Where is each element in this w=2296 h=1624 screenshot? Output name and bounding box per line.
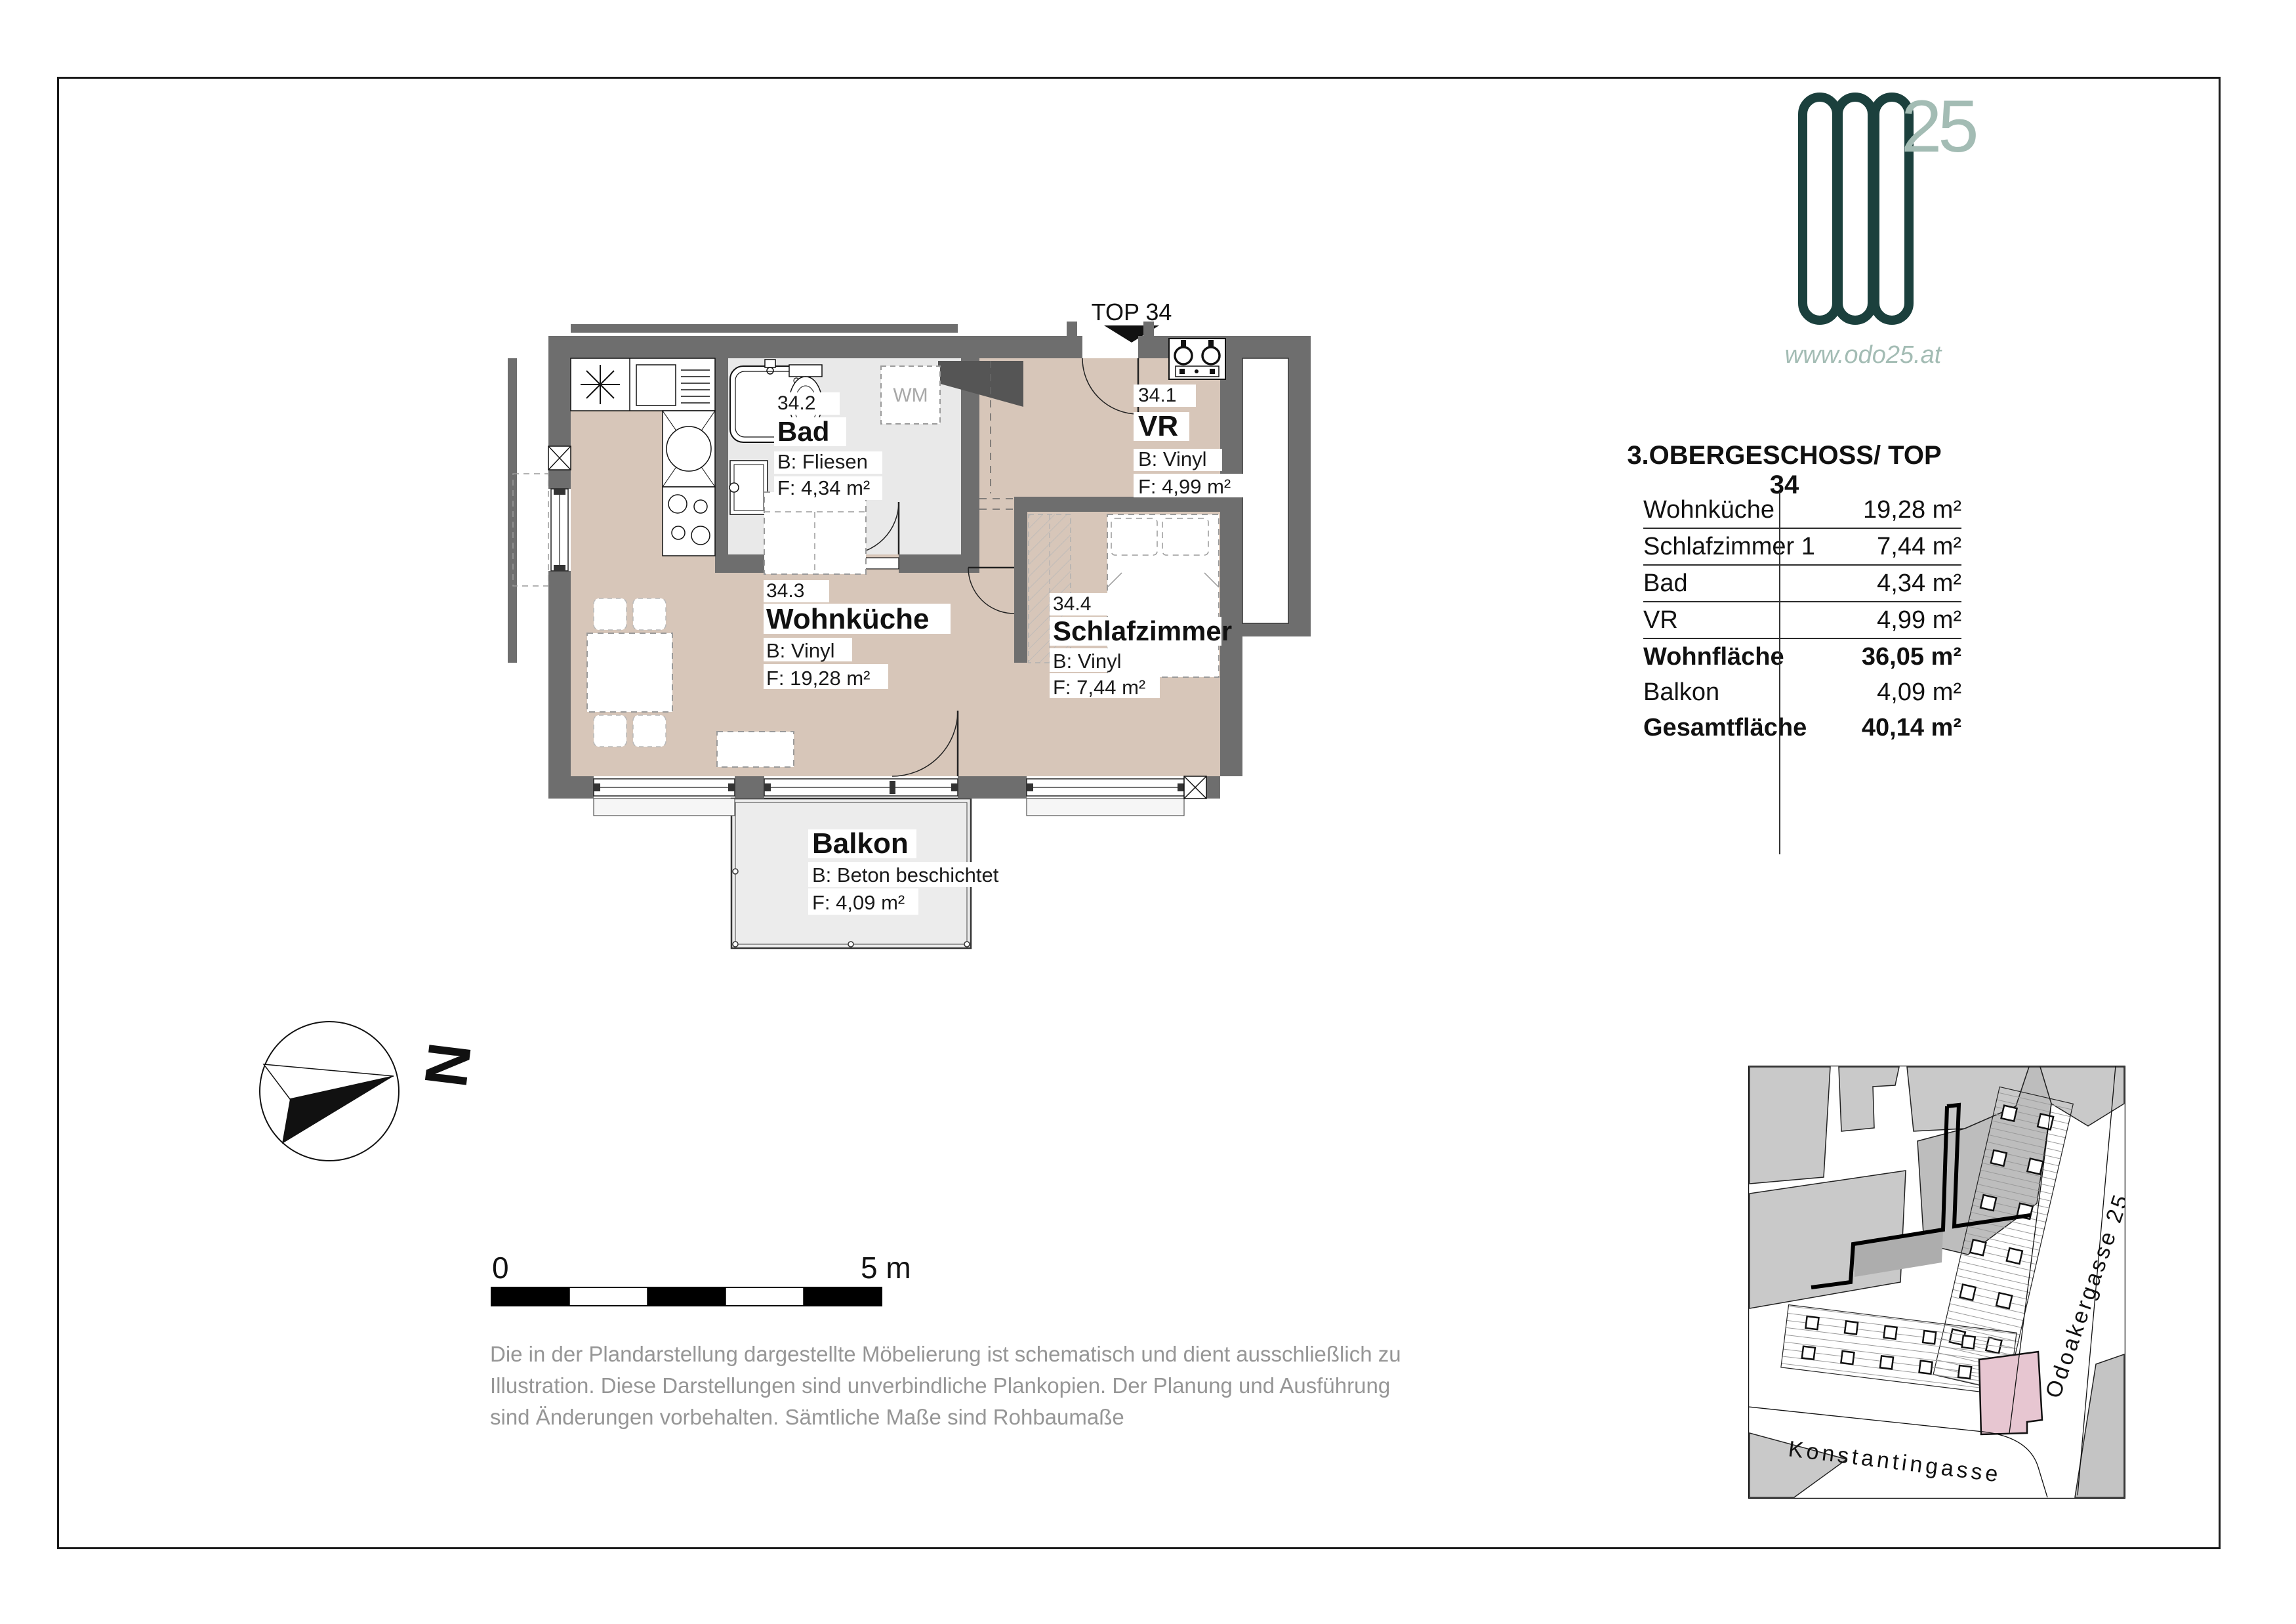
table-row-total-living: Wohnfläche 36,05 m² (1643, 639, 1961, 675)
room-floor: B: Fliesen (777, 450, 868, 473)
room-area: 4,34 m² (1877, 570, 1961, 598)
room-label: Schlafzimmer 1 (1643, 533, 1815, 561)
room-area: F: 4,99 m² (1138, 475, 1231, 498)
svg-text:WM: WM (893, 385, 928, 406)
table-divider (1779, 492, 1780, 854)
room-name: Bad (777, 416, 829, 447)
room-area: F: 7,44 m² (1053, 676, 1145, 699)
room-area: 19,28 m² (1863, 496, 1961, 524)
table-row: Schlafzimmer 1 7,44 m² (1643, 529, 1961, 566)
site-map: Konstantingasse Odoakergasse 25 (1748, 1066, 2125, 1499)
room-name: Schlafzimmer (1053, 615, 1232, 646)
north-label: N (411, 1039, 483, 1091)
room-area: 4,09 m² (1877, 678, 1961, 707)
sofa (764, 492, 866, 574)
room-area: 40,14 m² (1862, 714, 1961, 742)
washbasin-icon (729, 461, 768, 514)
table-row: VR 4,99 m² (1643, 602, 1961, 639)
disclaimer-line: sind Änderungen vorbehalten. Sämtliche M… (490, 1402, 1422, 1433)
room-floor: B: Beton beschichtet (812, 864, 999, 886)
room-area: 36,05 m² (1862, 643, 1961, 671)
room-floor: B: Vinyl (1138, 448, 1207, 470)
table-row-total: Gesamtfläche 40,14 m² (1643, 710, 1961, 745)
room-number: 34.1 (1138, 385, 1176, 406)
room-name: Balkon (812, 827, 909, 860)
room-number: 34.3 (766, 580, 804, 602)
scale-end: 5 m (861, 1251, 911, 1285)
scale-start: 0 (492, 1251, 509, 1285)
room-area: 4,99 m² (1877, 606, 1961, 635)
logo-number: 25 (1901, 84, 1975, 169)
room-floor: B: Vinyl (1053, 650, 1122, 673)
washing-machine: WM (881, 366, 940, 424)
room-name: VR (1138, 410, 1178, 442)
sideboard (717, 732, 794, 767)
room-area: F: 4,34 m² (777, 476, 870, 499)
table-row: Bad 4,34 m² (1643, 566, 1961, 602)
scale-bar: 0 5 m (485, 1240, 932, 1319)
room-label: Balkon (1643, 678, 1719, 707)
meter-box-icon (1169, 339, 1225, 379)
room-area: F: 4,09 m² (812, 891, 905, 914)
entrance-label: TOP 34 (1092, 299, 1172, 325)
table-row: Balkon 4,09 m² (1643, 675, 1961, 710)
room-name: Wohnküche (766, 603, 930, 635)
floor-plan: TOP 34 (505, 295, 1312, 958)
utility-shaft (1242, 358, 1288, 623)
room-number: 34.4 (1053, 593, 1091, 615)
disclaimer-line: Illustration. Diese Darstellungen sind u… (490, 1370, 1422, 1402)
compass: N (253, 1014, 535, 1191)
room-floor: B: Vinyl (766, 639, 835, 662)
room-label: VR (1643, 606, 1678, 635)
area-table: Wohnküche 19,28 m² Schlafzimmer 1 7,44 m… (1643, 492, 1961, 745)
room-label: Wohnfläche (1643, 643, 1784, 671)
room-label: Wohnküche (1643, 496, 1774, 524)
room-area: F: 19,28 m² (766, 667, 871, 690)
website-link[interactable]: www.odo25.at (1771, 341, 1955, 369)
room-area: 7,44 m² (1877, 533, 1961, 561)
disclaimer-text: Die in der Plandarstellung dargestellte … (490, 1339, 1422, 1433)
table-row: Wohnküche 19,28 m² (1643, 492, 1961, 529)
unit-title: 3.OBERGESCHOSS/ TOP 34 (1614, 441, 1955, 500)
disclaimer-line: Die in der Plandarstellung dargestellte … (490, 1339, 1422, 1370)
room-label: Bad (1643, 570, 1688, 598)
room-label: Gesamtfläche (1643, 714, 1807, 742)
room-number: 34.2 (777, 392, 815, 414)
floorplan-sheet: { "logo": { "brand": "ODO", "number": "2… (0, 0, 2296, 1624)
